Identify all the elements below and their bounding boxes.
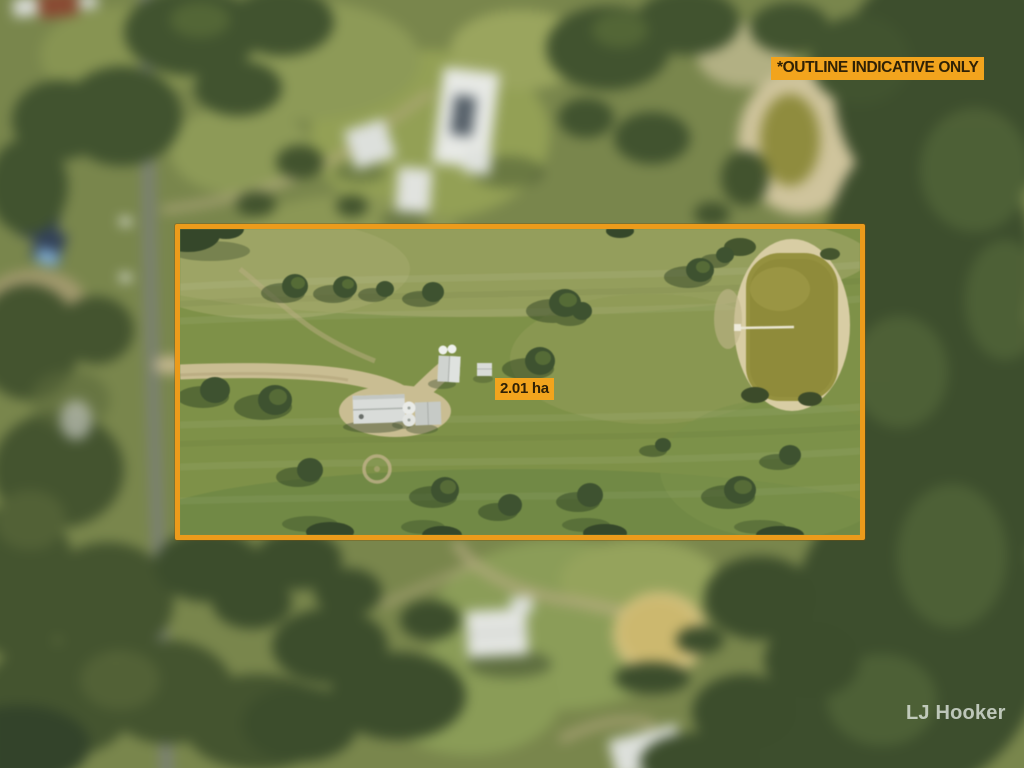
dam-jetty (738, 327, 794, 328)
upper-shed (437, 355, 460, 382)
area-label: 2.01 ha (495, 378, 554, 400)
outline-disclaimer-label: *OUTLINE INDICATIVE ONLY (771, 57, 984, 80)
agency-watermark: LJ Hooker (906, 702, 1006, 725)
machinery-shed (353, 394, 406, 424)
aerial-photo: *OUTLINE INDICATIVE ONLY 2.01 ha LJ Hook… (0, 0, 1024, 768)
second-shed (415, 402, 442, 426)
small-shed (477, 363, 492, 376)
shed-roof-in-trees (60, 400, 92, 440)
